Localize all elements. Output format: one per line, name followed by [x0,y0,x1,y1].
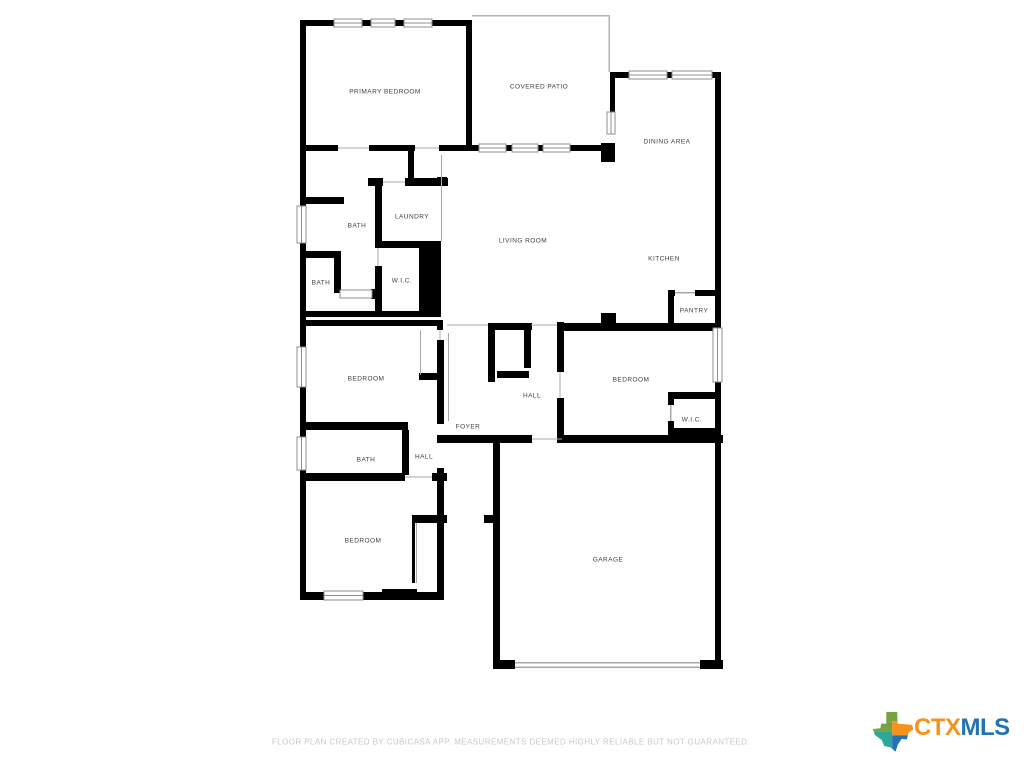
room-label-wic-right: W.I.C. [682,417,702,424]
room-label-garage: GARAGE [593,557,624,564]
room-label-bedroom-right: BEDROOM [613,377,650,384]
room-label-hall-lower: HALL [415,454,433,461]
room-label-covered-patio: COVERED PATIO [510,84,568,91]
room-label-bedroom-bottom: BEDROOM [345,538,382,545]
room-label-pantry: PANTRY [680,308,708,315]
room-label-foyer: FOYER [456,424,481,431]
room-label-living-room: LIVING ROOM [499,238,547,245]
room-label-kitchen: KITCHEN [648,256,680,263]
walls [300,20,723,669]
patio-outline [472,15,610,72]
ctx-text: CTX [914,714,961,741]
room-label-dining-area: DINING AREA [644,139,691,146]
room-label-bedroom-left: BEDROOM [348,376,385,383]
floor-plan-page: PRIMARY BEDROOM COVERED PATIO DINING ARE… [0,0,1024,768]
texas-icon [872,711,914,753]
room-label-primary-bedroom: PRIMARY BEDROOM [349,89,421,96]
floor-plan-drawing [0,0,1024,768]
room-label-bath-lower: BATH [357,457,376,464]
room-label-laundry: LAUNDRY [395,214,429,221]
room-label-bath-middle: BATH [312,280,331,287]
ctxmls-logo-text: CTXMLS [914,711,1010,745]
windows [297,19,722,600]
room-label-wic-left: W.I.C. [392,278,412,285]
room-label-bath-upper: BATH [348,223,367,230]
ctxmls-logo: CTXMLS [872,710,1012,756]
mls-text: MLS [961,714,1010,741]
room-label-hall-center: HALL [523,393,541,400]
disclaimer-text: FLOOR PLAN CREATED BY CUBICASA APP. MEAS… [272,738,750,747]
